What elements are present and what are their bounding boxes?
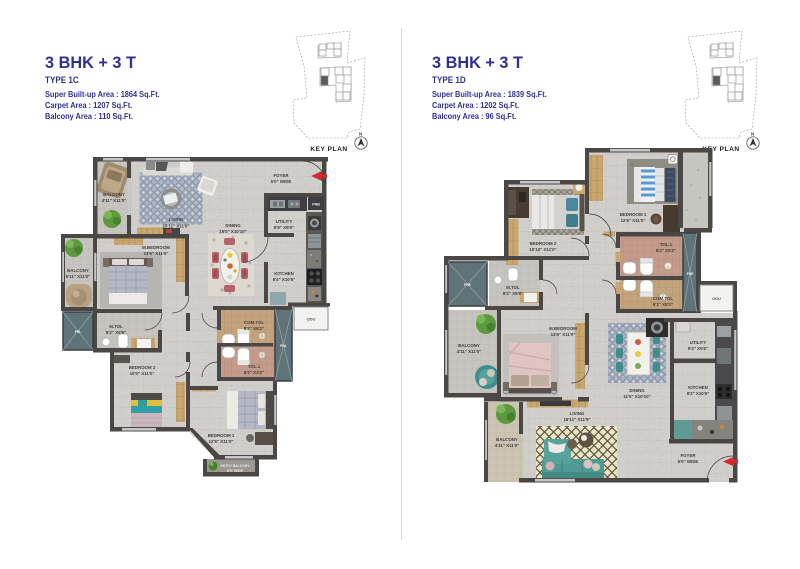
svg-text:ODU: ODU [712,296,721,301]
svg-text:8'2" X6'2": 8'2" X6'2" [244,326,264,331]
svg-text:13'6" X11'0": 13'6" X11'0" [551,332,576,337]
svg-text:8'2" X5'2": 8'2" X5'2" [656,248,676,253]
svg-text:8'4" X10'6": 8'4" X10'6" [273,277,296,282]
svg-text:COM.TOL: COM.TOL [653,296,673,301]
svg-text:BEDROOM 1: BEDROOM 1 [208,433,235,438]
svg-text:ENTRY BALCONY: ENTRY BALCONY [220,464,250,468]
svg-text:KEY PLAN: KEY PLAN [310,146,347,153]
svg-text:4'11" X11'0": 4'11" X11'0" [457,349,482,354]
svg-text:FHL: FHL [280,344,287,348]
svg-text:10'10" X11'0": 10'10" X11'0" [529,247,556,252]
svg-text:ODU: ODU [307,317,316,322]
svg-text:N: N [359,132,362,137]
svg-text:LIVING: LIVING [169,217,184,222]
svg-text:DINING: DINING [225,223,241,228]
svg-text:FHL: FHL [75,330,82,334]
svg-text:BALCONY: BALCONY [458,343,480,348]
svg-text:4'11" X11'0": 4'11" X11'0" [102,198,127,203]
svg-text:15'11" X11'0": 15'11" X11'0" [162,224,189,229]
svg-text:10'0" X11'0": 10'0" X11'0" [130,371,155,376]
svg-text:UTILITY: UTILITY [690,340,707,345]
svg-text:KITCHEN: KITCHEN [688,385,708,390]
svg-text:BALCONY: BALCONY [67,268,89,273]
svg-text:8'2" X5'2": 8'2" X5'2" [653,302,673,307]
svg-text:M.TOL: M.TOL [109,324,123,329]
svg-text:8'2" X5'8": 8'2" X5'8" [503,291,523,296]
svg-text:15'0" X10'10": 15'0" X10'10" [219,229,247,234]
svg-text:TOL.1: TOL.1 [248,364,261,369]
svg-text:BALCONY: BALCONY [496,437,518,442]
svg-text:BEDROOM 1: BEDROOM 1 [620,212,647,217]
svg-text:4'11" X11'0": 4'11" X11'0" [495,443,520,448]
svg-text:UTILITY: UTILITY [276,219,293,224]
svg-text:12'6" X11'0": 12'6" X11'0" [209,439,234,444]
svg-text:8'2" X10'6": 8'2" X10'6" [687,391,710,396]
svg-text:11'0" X10'10": 11'0" X10'10" [623,394,650,399]
svg-text:FHE: FHE [687,272,695,276]
svg-text:FOYER: FOYER [680,453,696,458]
svg-text:TOL.1: TOL.1 [660,242,673,247]
svg-text:KITCHEN: KITCHEN [274,271,294,276]
svg-text:5'0" WIDE: 5'0" WIDE [678,459,699,464]
svg-text:5'5" WIDE: 5'5" WIDE [227,469,244,473]
svg-text:8'6" X5'6": 8'6" X5'6" [274,225,294,230]
svg-text:12'6" X11'0": 12'6" X11'0" [621,218,646,223]
svg-text:BALCONY: BALCONY [103,192,125,197]
svg-text:8'2" X5'6": 8'2" X5'6" [688,346,708,351]
svg-text:DINING: DINING [629,388,645,393]
svg-text:COM.TOL: COM.TOL [244,320,264,325]
svg-text:8'2" X5'8": 8'2" X5'8" [106,330,126,335]
svg-text:LIVING: LIVING [570,411,585,416]
svg-text:5'0" WIDE: 5'0" WIDE [271,179,292,184]
svg-text:FHE: FHE [464,283,472,287]
svg-text:BEDROOM 2: BEDROOM 2 [530,241,557,246]
svg-text:M.BEDROOM: M.BEDROOM [142,245,170,250]
svg-text:8'2" X3'2": 8'2" X3'2" [244,370,264,375]
svg-text:13'6" X11'0": 13'6" X11'0" [144,251,169,256]
svg-text:FOYER: FOYER [273,173,289,178]
svg-text:BEDROOM 2: BEDROOM 2 [129,365,156,370]
svg-text:16'11" X11'9": 16'11" X11'9" [563,417,590,422]
svg-text:6'11" X11'0": 6'11" X11'0" [66,274,91,279]
svg-text:M.BEDROOM: M.BEDROOM [549,326,577,331]
svg-text:PHB: PHB [312,203,320,207]
svg-text:M.TOL: M.TOL [506,285,520,290]
